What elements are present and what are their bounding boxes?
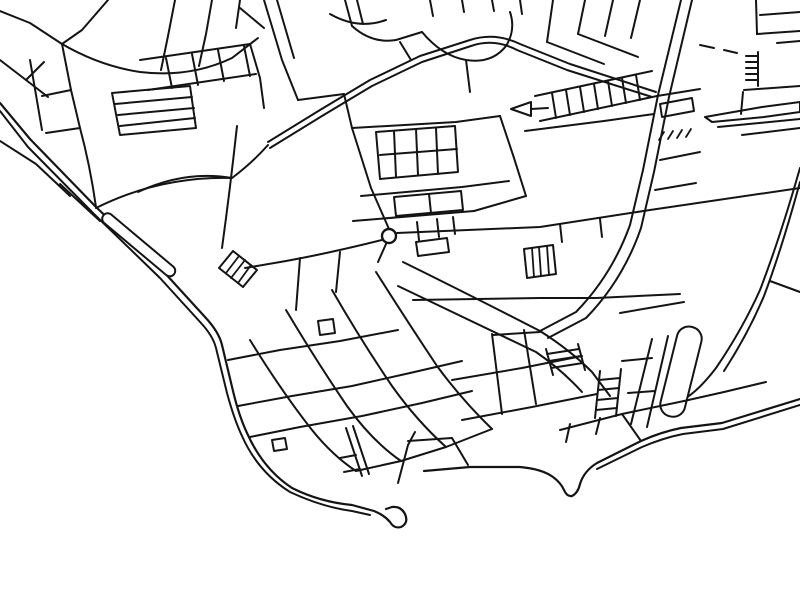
- avenue-se-line-b: [398, 286, 582, 392]
- boulevard-line-a: [268, 37, 656, 142]
- roundabout-stub: [378, 244, 386, 262]
- street: [500, 116, 526, 196]
- street: [250, 44, 264, 108]
- avenue-se-line-a: [403, 262, 610, 396]
- street: [655, 152, 700, 190]
- south-coast-line: [424, 399, 800, 496]
- street: [46, 128, 80, 133]
- street: [622, 358, 655, 393]
- street: [657, 89, 700, 96]
- layer-old-town: [228, 252, 621, 476]
- street: [757, 31, 800, 34]
- layer-coastline: [0, 103, 800, 527]
- map-root: [0, 0, 800, 600]
- street: [531, 108, 548, 109]
- street: [684, 382, 766, 401]
- street: [466, 60, 470, 92]
- street: [770, 281, 800, 292]
- layer-roundabout: [382, 229, 396, 243]
- street: [462, 394, 597, 420]
- promenade-inner-line: [0, 111, 370, 515]
- street-stubs: [430, 0, 522, 16]
- street: [756, 0, 757, 34]
- terrace-comb: [746, 52, 758, 86]
- layer-north-streets: [240, 0, 522, 128]
- roundabout-circle: [382, 229, 396, 243]
- west-road: [245, 240, 382, 268]
- street: [62, 38, 258, 73]
- map-svg: [0, 0, 800, 600]
- street: [356, 429, 492, 471]
- building-outline: [272, 438, 287, 451]
- street: [26, 62, 44, 80]
- street: [148, 74, 256, 90]
- street: [42, 90, 71, 96]
- street: [777, 41, 800, 43]
- wedge-building: [511, 102, 531, 116]
- street: [353, 211, 474, 221]
- coast-link-road: [96, 145, 268, 208]
- street: [296, 252, 340, 310]
- slope-hatch-ticks: [659, 129, 691, 140]
- street: [62, 44, 80, 128]
- layer-northwest-streets: [0, 0, 264, 248]
- street: [400, 42, 411, 60]
- street: [80, 128, 96, 207]
- street-ticks: [417, 217, 455, 240]
- layer-north-blocks: [352, 116, 526, 229]
- hatched-building-stripes: [532, 246, 549, 277]
- street: [352, 116, 500, 128]
- street: [631, 339, 652, 424]
- building-divider: [380, 149, 457, 155]
- street: [199, 0, 212, 66]
- terrace-block-outline: [112, 86, 196, 135]
- street: [0, 11, 62, 44]
- street: [493, 332, 540, 335]
- street: [236, 0, 240, 28]
- jetty-spit-outline: [705, 102, 800, 122]
- street: [238, 361, 462, 406]
- building-outline: [318, 319, 335, 335]
- street: [578, 34, 638, 57]
- street: [620, 302, 684, 313]
- street: [330, 14, 386, 24]
- building-outline: [416, 238, 449, 256]
- right-coast-road-b: [724, 182, 800, 371]
- street: [376, 272, 492, 429]
- street: [352, 26, 422, 41]
- building-divider: [429, 194, 431, 213]
- street-stubs: [547, 0, 640, 42]
- street: [742, 128, 800, 135]
- street: [744, 86, 800, 90]
- street: [474, 196, 526, 211]
- street: [413, 294, 680, 300]
- street: [547, 42, 604, 64]
- south-coast-inner-line: [597, 405, 800, 469]
- street: [422, 12, 512, 61]
- street: [240, 8, 264, 28]
- street: [525, 114, 654, 131]
- street: [492, 334, 502, 414]
- street: [760, 12, 800, 15]
- street: [222, 126, 237, 248]
- stone-pier: [100, 211, 178, 279]
- terrace-row: [115, 97, 195, 126]
- street: [161, 0, 175, 70]
- highway-line-a: [540, 0, 681, 331]
- street-dashes: [700, 45, 737, 53]
- street: [62, 0, 108, 44]
- street: [250, 340, 356, 471]
